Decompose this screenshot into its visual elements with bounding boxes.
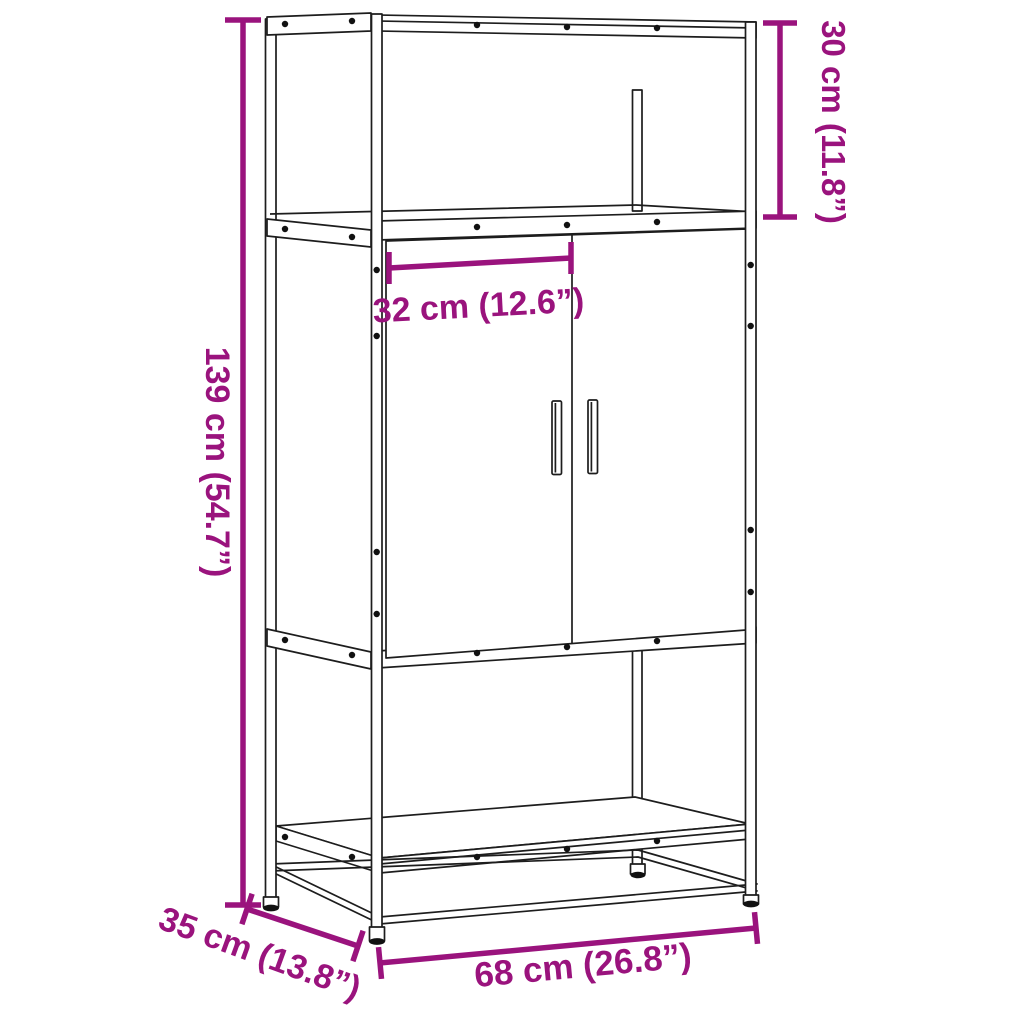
floor-frame (270, 850, 757, 924)
front-left-post (369, 14, 385, 945)
foot-front-right (743, 901, 759, 908)
door-handle-left (552, 401, 562, 475)
dimension-top-section-height: 30 cm (11.8”) (763, 20, 852, 224)
dimension-total-height: 139 cm (54.7”) (198, 20, 261, 905)
foot-back-left (263, 905, 279, 912)
top-frame-rails (267, 13, 756, 38)
cabinet-line-drawing (263, 13, 759, 945)
foot-back-right (631, 872, 646, 878)
dimension-label: 30 cm (11.8”) (815, 20, 852, 224)
foot-front-left (369, 938, 385, 945)
dimension-label: 139 cm (54.7”) (198, 347, 236, 578)
product-dimension-diagram: 139 cm (54.7”) 30 cm (11.8”) 32 cm (12.6… (0, 0, 1024, 1024)
back-left-post (263, 19, 279, 911)
dimension-width: 68 cm (26.8”) (379, 912, 758, 995)
diagram-svg: 139 cm (54.7”) 30 cm (11.8”) 32 cm (12.6… (0, 0, 1024, 1024)
dimension-depth: 35 cm (13.8”) (154, 894, 366, 1008)
front-right-post (743, 22, 759, 907)
door-handle-right (588, 400, 598, 474)
